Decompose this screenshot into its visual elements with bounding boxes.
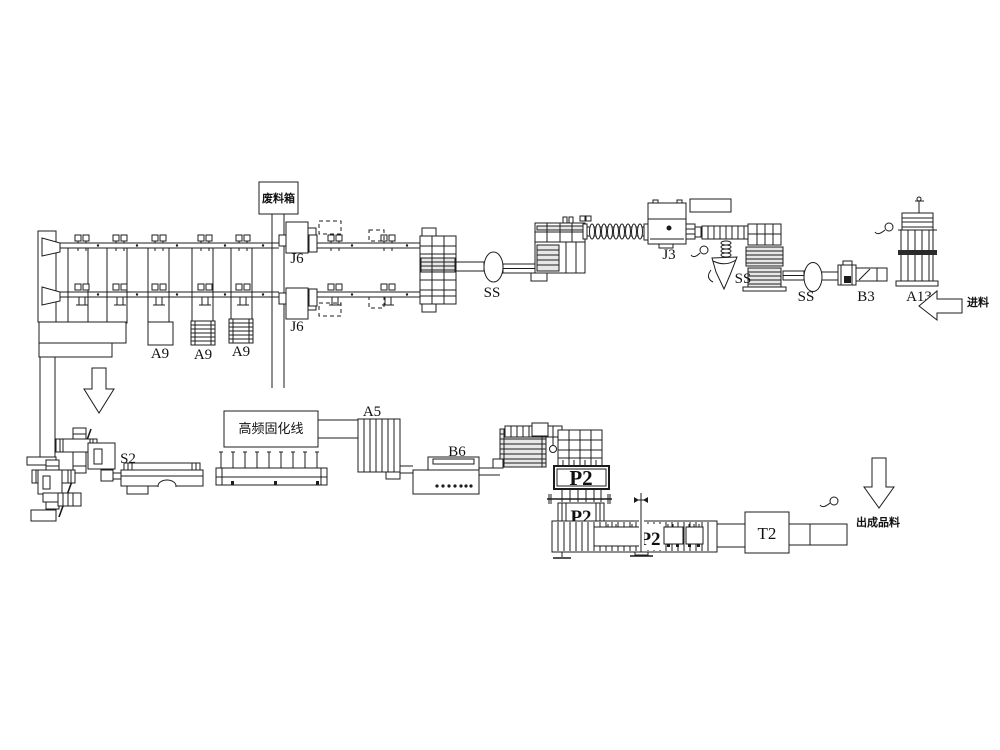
a9-label-2: A9 <box>194 347 212 363</box>
segmented-conveyor <box>702 226 748 239</box>
upper-plate <box>690 199 731 212</box>
t2-label: T2 <box>758 524 777 543</box>
b3-label: B3 <box>857 289 875 305</box>
ss-label-right: SS <box>798 289 815 305</box>
curing-line-label: 高频固化线 <box>238 421 303 436</box>
a9-unit-3: A9 <box>229 319 253 360</box>
production-line-diagram: A9 A9 A9 废料箱 J6 J6 <box>0 0 1000 750</box>
ss-label-left: SS <box>484 285 501 301</box>
crane-hook-icon <box>550 446 557 453</box>
canvas <box>0 0 1000 750</box>
ss-label-funnel: SS <box>735 271 752 287</box>
a5-label: A5 <box>363 404 381 420</box>
feed-in-label: 进料 <box>967 295 989 309</box>
p2-press-label: P2 <box>569 466 592 490</box>
a9-label-3: A9 <box>232 344 250 360</box>
a9-unit-2: A9 <box>191 321 215 363</box>
product-out-label: 出成品料 <box>856 515 900 529</box>
j6-label-bottom: J6 <box>290 319 304 335</box>
a9-label-1: A9 <box>151 346 169 362</box>
rail-end-rack <box>420 228 456 312</box>
j6-label-top: J6 <box>290 251 304 267</box>
grid-rack <box>558 430 602 468</box>
waste-box-label: 废料箱 <box>262 191 295 205</box>
j3-label: J3 <box>662 247 675 263</box>
middle-rack <box>531 217 585 281</box>
